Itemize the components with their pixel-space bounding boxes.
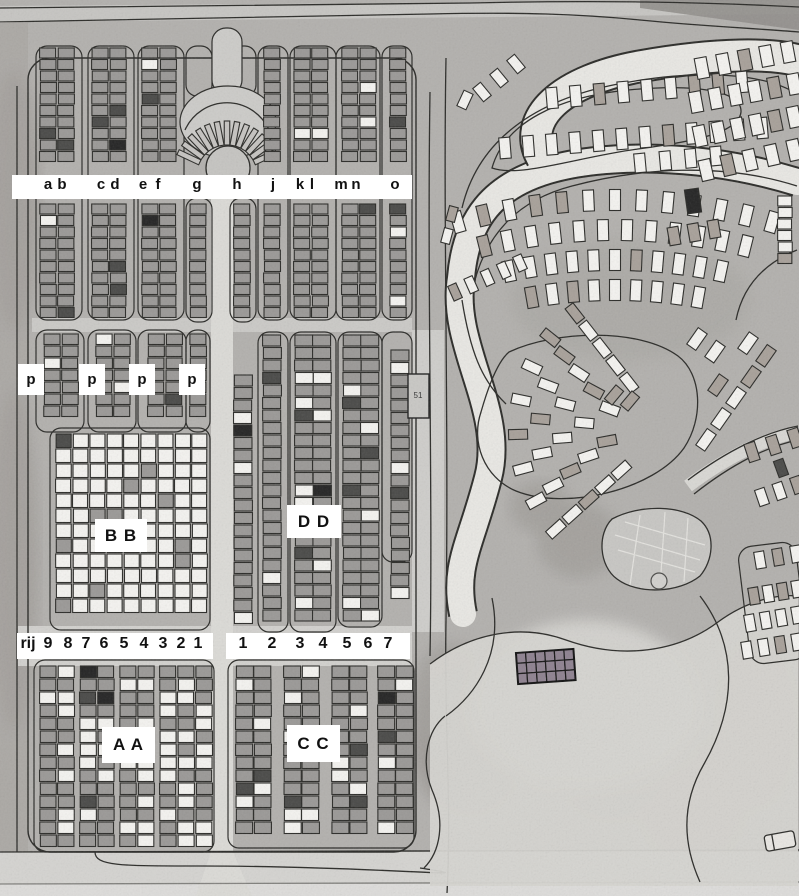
cemetery-map: abcdefghjklmnoppppB BD DA AC Crij9876543…: [0, 0, 799, 896]
map-canvas: [0, 0, 799, 896]
